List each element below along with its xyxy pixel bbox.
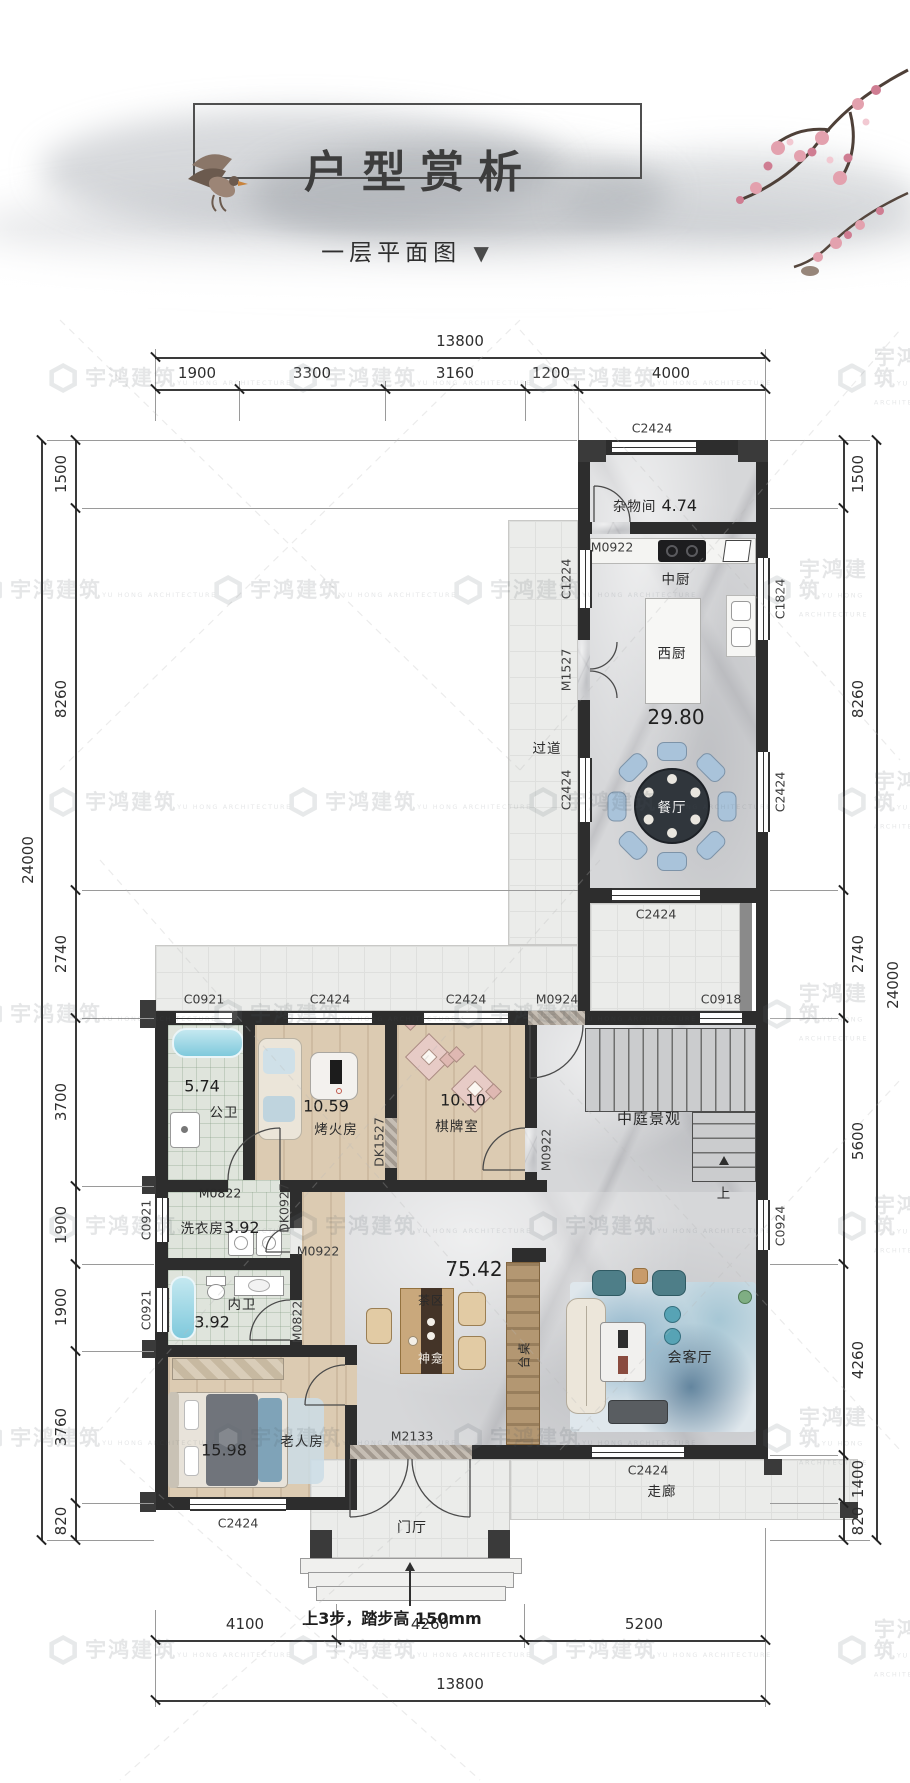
opening-label-c2424: C2424 xyxy=(632,421,673,436)
dim-right-3: 5600 xyxy=(849,1122,867,1160)
opening-label-c2424-dining-s: C2424 xyxy=(636,907,677,922)
room-label-neiwei: 内卫 xyxy=(228,1293,257,1313)
dim-top-total: 13800 xyxy=(436,332,484,350)
opening-label-dk1527: DK1527 xyxy=(372,1117,387,1167)
opening-label-c0921-n: C0921 xyxy=(184,992,225,1007)
dim-right-seg-line xyxy=(843,440,845,1540)
dim-left-1: 8260 xyxy=(52,680,70,718)
dim-top-4: 4000 xyxy=(652,364,690,382)
entry-arrow-stem xyxy=(409,1570,411,1606)
dim-top-1: 3300 xyxy=(293,364,331,382)
dim-right-0: 1500 xyxy=(849,455,867,493)
room-label-zoulang: 走廊 xyxy=(648,1480,677,1500)
dim-left-6: 3760 xyxy=(52,1408,70,1446)
area-label-laorenfang: 15.98 xyxy=(201,1441,247,1460)
room-label-taizhuo: 台桌 xyxy=(514,1341,533,1368)
dim-left-5: 1900 xyxy=(52,1288,70,1326)
room-label-huiketing: 会客厅 xyxy=(668,1347,713,1367)
opening-label-c2424-wing-right: C2424 xyxy=(773,772,788,813)
floorplan-page: 户型赏析 一层平面图 ▼ xyxy=(0,0,910,1783)
dim-bottom-total-line xyxy=(155,1700,765,1702)
room-label-shenkan: 神龛 xyxy=(418,1350,444,1367)
dim-right-2: 2740 xyxy=(849,935,867,973)
room-label-qipaishi: 棋牌室 xyxy=(435,1115,479,1135)
dim-top-2: 3160 xyxy=(436,364,474,382)
room-label-canting: 餐厅 xyxy=(658,796,687,816)
door-arcs xyxy=(0,0,910,1783)
opening-label-dk0927: DK0927 xyxy=(277,1183,292,1233)
dim-right-4: 4260 xyxy=(849,1341,867,1379)
dim-top-0: 1900 xyxy=(178,364,216,382)
opening-label-c2424-n1: C2424 xyxy=(310,992,351,1007)
opening-label-c2424-laoren: C2424 xyxy=(218,1516,259,1531)
dim-right-6: 820 xyxy=(849,1507,867,1536)
room-label-xichu: 西厨 xyxy=(658,642,687,662)
opening-label-c2424-south: C2424 xyxy=(628,1463,669,1478)
stair-direction-arrow xyxy=(719,1156,729,1165)
stairs-up-label: 上 xyxy=(717,1182,732,1202)
dim-top-3: 1200 xyxy=(532,364,570,382)
dim-right-5: 1400 xyxy=(849,1460,867,1498)
dim-left-total: 24000 xyxy=(19,836,37,884)
room-label-zhongchu: 中厨 xyxy=(662,568,691,588)
opening-label-m0922-xiyi: M0922 xyxy=(297,1244,340,1259)
room-label-xiyifang: 洗衣房3.92 xyxy=(180,1217,259,1237)
dim-right-total-line xyxy=(876,440,878,1540)
dim-bottom-2: 5200 xyxy=(625,1615,663,1633)
opening-label-c0918: C0918 xyxy=(701,992,742,1007)
dim-bottom-seg-line xyxy=(155,1640,765,1642)
dim-left-seg-line xyxy=(75,440,77,1540)
room-label-zhongting: 中庭景观 xyxy=(617,1108,681,1129)
opening-label-m1527: M1527 xyxy=(559,649,574,692)
room-label-laorenfang: 老人房 xyxy=(280,1430,324,1450)
room-label-kaohuofang: 烤火房 xyxy=(314,1118,358,1138)
opening-label-m0924: M0924 xyxy=(536,992,579,1007)
room-label-guodao: 过道 xyxy=(533,737,562,757)
dim-top-seg-line xyxy=(155,389,765,391)
dim-left-0: 1500 xyxy=(52,455,70,493)
opening-label-m0922: M0922 xyxy=(591,540,634,555)
dim-left-2: 2740 xyxy=(52,935,70,973)
dim-right-1: 8260 xyxy=(849,680,867,718)
opening-label-c0921-w2: C0921 xyxy=(139,1290,154,1331)
opening-label-c0921-w1: C0921 xyxy=(139,1200,154,1241)
room-label-menting: 门厅 xyxy=(397,1517,427,1537)
opening-label-m0822-neiwei: M0822 xyxy=(290,1301,305,1344)
room-label-zawujian: 杂物间 4.74 xyxy=(613,495,697,515)
area-label-kaohuofang: 10.59 xyxy=(303,1097,349,1116)
dim-right-total: 24000 xyxy=(884,961,902,1009)
dim-top-total-line xyxy=(155,357,765,359)
opening-label-c1224: C1224 xyxy=(559,559,574,600)
area-label-qipaishi: 10.10 xyxy=(440,1091,486,1110)
dim-left-3: 3700 xyxy=(52,1083,70,1121)
room-label-gongwei: 公卫 xyxy=(210,1101,239,1121)
area-label-neiwei: 3.92 xyxy=(194,1313,230,1332)
dim-left-total-line xyxy=(41,440,43,1540)
dim-bottom-0: 4100 xyxy=(226,1615,264,1633)
opening-label-c2424-n2: C2424 xyxy=(446,992,487,1007)
opening-label-c1824: C1824 xyxy=(773,579,788,620)
dim-left-7: 820 xyxy=(52,1507,70,1536)
opening-label-m2133: M2133 xyxy=(391,1429,434,1444)
steps-note: 上3步，踏步高 150mm xyxy=(302,1605,481,1629)
area-label-living: 75.42 xyxy=(445,1257,502,1281)
dim-bottom-total: 13800 xyxy=(436,1675,484,1693)
area-label-gongwei: 5.74 xyxy=(184,1077,220,1096)
area-label-canting: 29.80 xyxy=(647,705,704,729)
opening-label-m0922-qipai: M0922 xyxy=(539,1129,554,1172)
room-label-chaqu: 茶区 xyxy=(418,1292,444,1309)
opening-label-m0822-gongwei: M0822 xyxy=(199,1186,242,1201)
dim-left-4: 1900 xyxy=(52,1206,70,1244)
opening-label-c0924: C0924 xyxy=(773,1206,788,1247)
opening-label-c2424-wing-left: C2424 xyxy=(559,770,574,811)
